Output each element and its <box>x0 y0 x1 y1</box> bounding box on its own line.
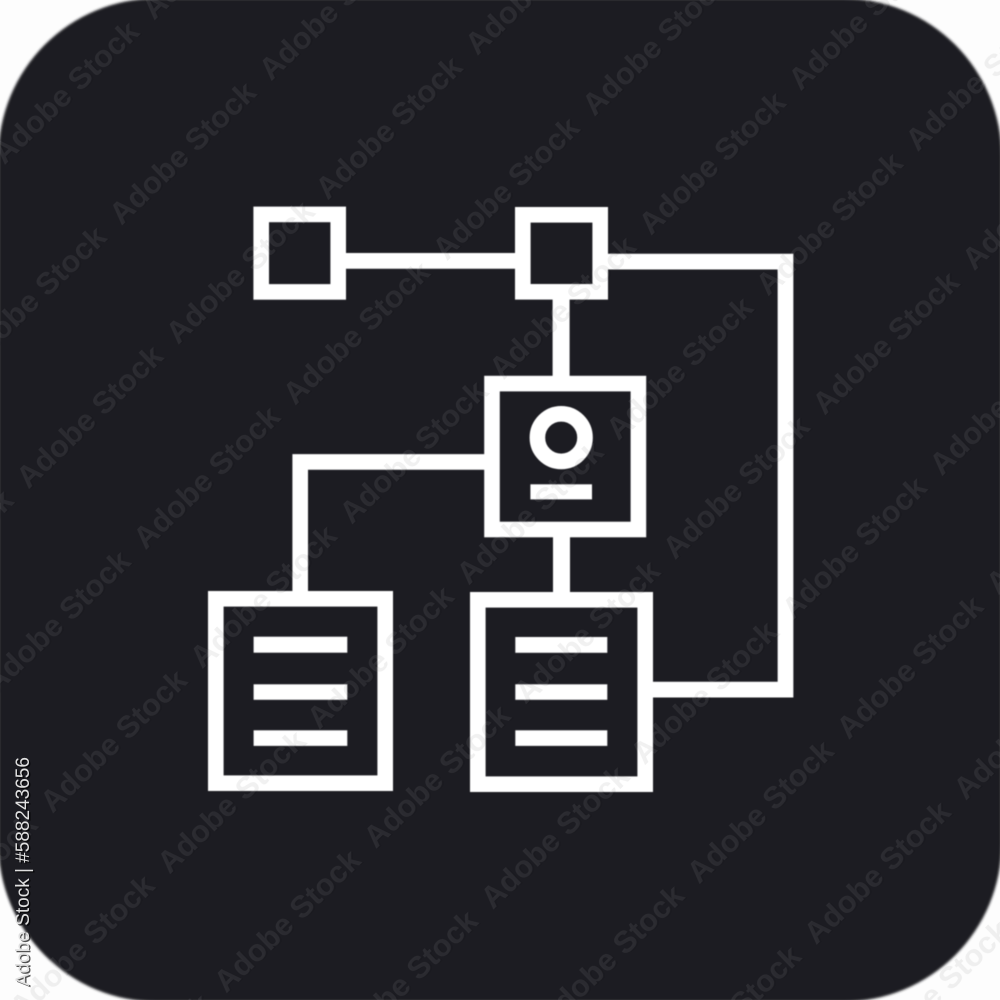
svg-text:Adobe Stock | #588243656: Adobe Stock | #588243656 <box>13 757 34 986</box>
